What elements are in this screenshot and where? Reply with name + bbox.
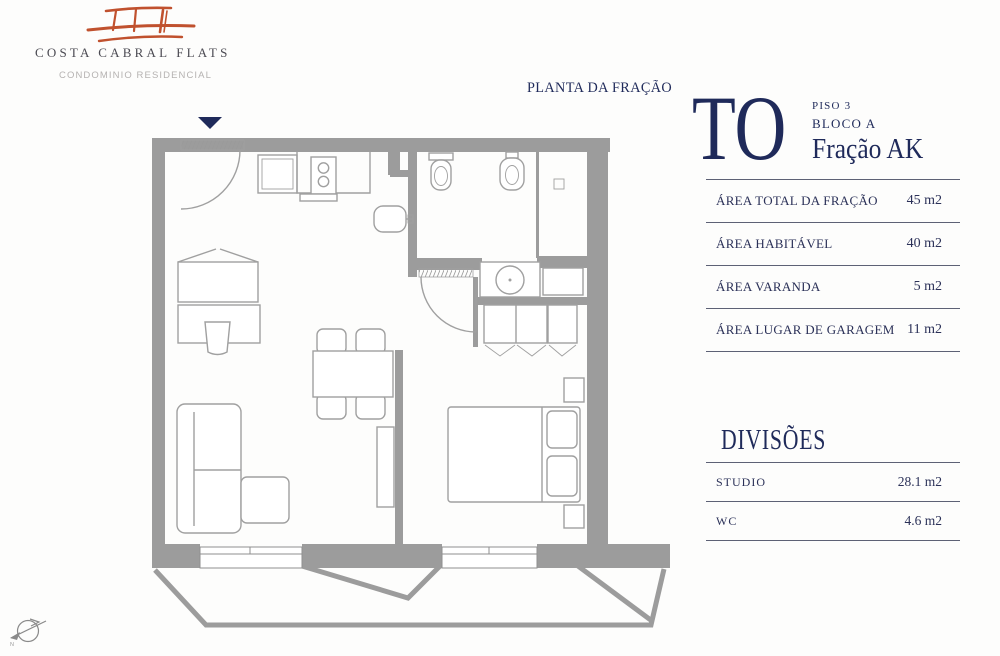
toilet-icon: [429, 153, 453, 190]
shower-drain: [554, 179, 564, 189]
divisions-table: STUDIO 28.1 m2 WC 4.6 m2: [706, 462, 960, 541]
washing-machine: [543, 268, 583, 295]
table-row: STUDIO 28.1 m2: [706, 462, 960, 501]
entry-door: [181, 140, 244, 209]
area-label: ÁREA TOTAL DA FRAÇÃO: [706, 193, 878, 209]
unit-meta: PISO 3 BLOCO A Fração AK: [812, 99, 938, 166]
north-triangle-marker: [198, 117, 222, 129]
compass-icon: N: [10, 619, 46, 648]
area-value: 5 m2: [914, 279, 960, 295]
interior-door: [419, 269, 476, 332]
area-label: ÁREA LUGAR DE GARAGEM: [706, 322, 895, 338]
bidet-icon: [500, 152, 524, 190]
bed: [448, 378, 584, 528]
washbasin-counter: [480, 262, 540, 297]
tv-unit: [377, 427, 394, 507]
area-label: ÁREA HABITÁVEL: [706, 236, 833, 252]
area-value: 45 m2: [907, 193, 960, 209]
area-table: ÁREA TOTAL DA FRAÇÃO 45 m2 ÁREA HABITÁVE…: [706, 179, 960, 352]
desk-area: [178, 249, 260, 355]
brand-logo-sketch: [86, 3, 201, 47]
unit-floor: PISO 3: [812, 99, 938, 114]
brand-name: COSTA CABRAL FLATS: [35, 45, 231, 61]
dining-set: [313, 329, 393, 419]
table-row: ÁREA VARANDA 5 m2: [706, 265, 960, 308]
sofa: [177, 404, 289, 533]
area-label: ÁREA VARANDA: [706, 279, 821, 295]
area-value: 11 m2: [907, 322, 960, 338]
division-value: 4.6 m2: [904, 513, 960, 529]
brand-subtitle: CONDOMINIO RESIDENCIAL: [59, 70, 212, 81]
area-value: 40 m2: [907, 236, 960, 252]
division-value: 28.1 m2: [898, 474, 960, 490]
plan-title: PLANTA DA FRAÇÃO: [527, 80, 672, 97]
table-row: ÁREA HABITÁVEL 40 m2: [706, 222, 960, 265]
table-row: WC 4.6 m2: [706, 501, 960, 541]
table-row: ÁREA LUGAR DE GARAGEM 11 m2: [706, 308, 960, 352]
wardrobes: [484, 305, 577, 356]
divisions-title: DIVISÕES: [721, 424, 826, 457]
division-label: WC: [706, 514, 737, 529]
unit-code: TO: [692, 86, 786, 171]
unit-block: BLOCO A: [812, 114, 938, 133]
living-window: [200, 547, 302, 568]
compass-north-label: N: [10, 642, 14, 648]
table-row: ÁREA TOTAL DA FRAÇÃO 45 m2: [706, 179, 960, 222]
unit-fraction: Fração AK: [812, 133, 923, 166]
balcony: [155, 566, 664, 625]
division-label: STUDIO: [706, 475, 766, 490]
bedroom-window: [442, 547, 537, 568]
